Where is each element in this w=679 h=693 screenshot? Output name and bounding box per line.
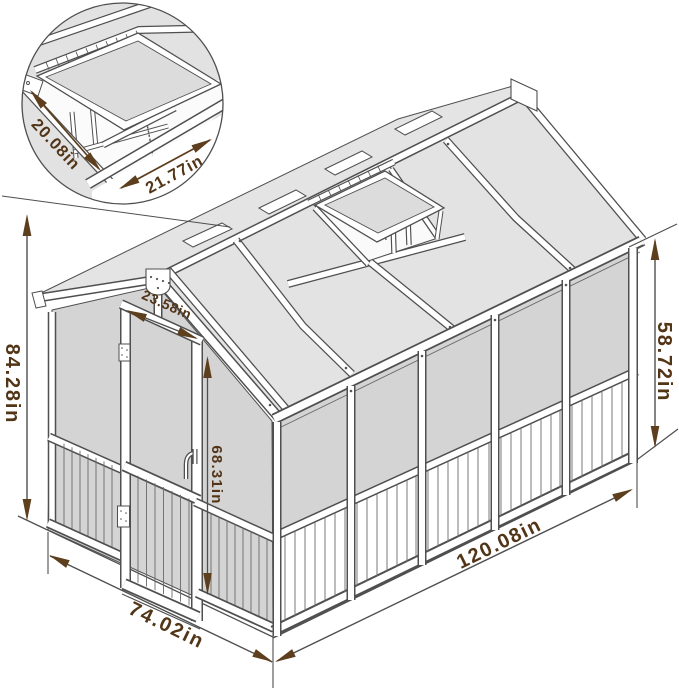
- svg-text:84.28in: 84.28in: [1, 344, 23, 424]
- svg-text:68.31in: 68.31in: [208, 445, 225, 504]
- svg-text:58.72in: 58.72in: [653, 322, 675, 402]
